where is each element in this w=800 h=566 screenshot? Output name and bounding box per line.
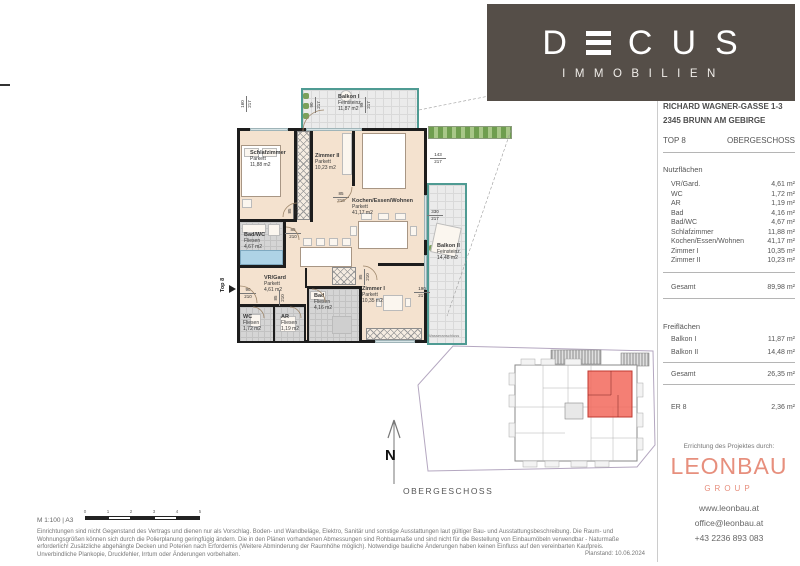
highlighted-unit-walls bbox=[588, 371, 618, 417]
room-label-wc: WCFliesen1,72 m2 bbox=[243, 314, 261, 332]
window bbox=[250, 128, 288, 131]
unit-partition-lines bbox=[515, 365, 637, 461]
stylized-e-letter bbox=[586, 30, 611, 55]
site-overview-map bbox=[413, 343, 673, 508]
area-row: Zimmer I10,35 m² bbox=[663, 248, 795, 255]
wall bbox=[305, 268, 307, 288]
balcony-stubs bbox=[509, 359, 643, 467]
divider bbox=[663, 298, 795, 299]
window bbox=[375, 340, 415, 343]
furniture-chair bbox=[329, 238, 338, 246]
highlighted-unit-top8 bbox=[588, 371, 632, 417]
room-label-bad: BadFliesen4,16 m2 bbox=[314, 293, 332, 311]
freiflaechen-title: Freiflächen bbox=[663, 322, 700, 331]
furniture-chair bbox=[350, 226, 357, 236]
wall bbox=[307, 286, 361, 289]
area-row: Balkon II14,48 m² bbox=[663, 349, 795, 356]
measurement: 95217 bbox=[359, 97, 371, 113]
address-line-2: 2345 BRUNN AM GEBIRGE bbox=[663, 116, 765, 125]
wall bbox=[378, 263, 427, 266]
room-label-zimmer-2: Zimmer IIParkett10,23 m2 bbox=[315, 153, 339, 171]
brand-banner: D C U S IMMOBILIEN bbox=[487, 4, 795, 101]
scalebar-tick: 1 bbox=[104, 509, 112, 514]
unit-number: TOP 8 bbox=[663, 136, 686, 145]
scalebar-segment bbox=[108, 516, 131, 520]
brand-letter-d: D bbox=[542, 26, 569, 60]
furniture-chair bbox=[405, 298, 411, 307]
room-label-schlafzimmer: SchlafzimmerParkett11,88 m2 bbox=[250, 150, 286, 168]
divider bbox=[663, 152, 795, 153]
furniture-kitchen-island bbox=[300, 247, 352, 267]
bathtub bbox=[240, 250, 283, 265]
divider bbox=[663, 384, 795, 385]
area-row: AR1,19 m² bbox=[663, 200, 795, 207]
furniture-chair bbox=[410, 226, 417, 236]
scale-text: M 1:100 | A3 bbox=[37, 517, 73, 524]
minimap-floor-label: OBERGESCHOSS bbox=[403, 486, 493, 496]
brand-letter-u: U bbox=[671, 26, 698, 60]
brand-letter-s: S bbox=[715, 26, 740, 60]
water-connection-label: Wasseranschluss bbox=[428, 333, 459, 338]
wall bbox=[352, 131, 355, 186]
divider bbox=[663, 272, 795, 273]
measurement: 90210 bbox=[240, 287, 256, 299]
roof-hatch bbox=[621, 353, 649, 366]
brand-letter-c: C bbox=[628, 26, 655, 60]
furniture-chair bbox=[342, 238, 351, 246]
nutzflaechen-title: Nutzflächen bbox=[663, 165, 703, 174]
wall bbox=[240, 265, 286, 268]
area-row: VR/Gard.4,61 m² bbox=[663, 181, 795, 188]
disclaimer-line: Wohnungsgrößen können sich durch die Pol… bbox=[37, 537, 647, 545]
scalebar-tick: 5 bbox=[196, 509, 204, 514]
brand-subtitle: IMMOBILIEN bbox=[557, 68, 725, 80]
measurement: 85210 bbox=[358, 269, 370, 285]
divider bbox=[663, 362, 795, 363]
room-label-badwc: Bad/WCFliesen4,67 m2 bbox=[244, 232, 265, 250]
measurement: 330217 bbox=[427, 209, 443, 221]
entry-arrow-icon bbox=[229, 285, 236, 293]
sidebar-divider bbox=[657, 100, 658, 562]
wall bbox=[307, 289, 309, 342]
floor-name: OBERGESCHOSS bbox=[727, 136, 795, 145]
hedge-planter bbox=[428, 126, 512, 139]
measurement: 85210 bbox=[285, 227, 301, 239]
area-row: WC1,72 m² bbox=[663, 191, 795, 198]
wall bbox=[304, 307, 306, 343]
furniture-chair bbox=[303, 238, 312, 246]
measurement: 160217 bbox=[240, 96, 252, 112]
furniture-chair bbox=[316, 238, 325, 246]
furniture-table bbox=[383, 295, 403, 311]
scalebar-tick: 4 bbox=[173, 509, 181, 514]
scalebar-segment bbox=[85, 516, 108, 520]
furniture-kitchen-block bbox=[362, 133, 406, 189]
freiflaechen-total-row: Gesamt26,35 m² bbox=[663, 371, 795, 378]
wardrobe-hatch bbox=[366, 328, 422, 340]
furniture-desk bbox=[342, 133, 352, 175]
measurement: 143217 bbox=[430, 152, 446, 164]
stair-core bbox=[565, 403, 583, 419]
brand-logo: D C U S bbox=[542, 26, 739, 60]
scalebar-segment bbox=[154, 516, 177, 520]
disclaimer-line: Einrichtungen sind nicht Gegenstand des … bbox=[37, 529, 647, 537]
measurement: 85210 bbox=[287, 203, 299, 219]
toilet bbox=[268, 224, 280, 236]
trim-mark bbox=[0, 84, 10, 86]
furniture-nightstand bbox=[242, 199, 252, 208]
area-row: Bad/WC4,67 m² bbox=[663, 219, 795, 226]
shower bbox=[332, 316, 352, 334]
area-row: Balkon I11,87 m² bbox=[663, 336, 795, 343]
unit-floor-row: TOP 8 OBERGESCHOSS bbox=[663, 136, 795, 145]
building-outline bbox=[515, 365, 637, 461]
measurement: 90217 bbox=[309, 97, 321, 113]
wall bbox=[240, 219, 297, 222]
area-row: Kochen/Essen/Wohnen41,17 m² bbox=[663, 238, 795, 245]
measurement: 85210 bbox=[333, 191, 349, 203]
er-row: ER 82,36 m² bbox=[663, 404, 795, 411]
window bbox=[306, 128, 362, 131]
furniture-dining-table bbox=[358, 221, 408, 249]
nutzflaechen-total-row: Gesamt89,98 m² bbox=[663, 284, 795, 291]
area-row: Bad4,16 m² bbox=[663, 210, 795, 217]
north-arrow-icon: N bbox=[385, 420, 400, 484]
scalebar-segment bbox=[177, 516, 200, 520]
roof-hatch bbox=[551, 350, 601, 364]
room-label-zimmer-1: Zimmer IParkett10,35 m2 bbox=[362, 286, 385, 304]
measurement: 85210 bbox=[273, 290, 285, 306]
area-row: Zimmer II10,23 m² bbox=[663, 257, 795, 264]
window bbox=[424, 255, 427, 290]
plan-document-page: D C U S IMMOBILIEN RICHARD WAGNER-GASSE … bbox=[0, 0, 800, 566]
wardrobe-hatch bbox=[332, 267, 356, 285]
area-row: Schlafzimmer11,88 m² bbox=[663, 229, 795, 236]
room-label-balkon-2: Balkon IIFeinsteinz.14,48 m2 bbox=[437, 243, 461, 261]
room-label-kochen-essen-wohnen: Kochen/Essen/WohnenParkett41,17 m2 bbox=[352, 198, 413, 216]
north-label: N bbox=[385, 447, 396, 464]
wall bbox=[310, 131, 313, 222]
plan-date: Planstand: 10.06.2024 bbox=[450, 551, 645, 557]
scalebar-tick: 2 bbox=[127, 509, 135, 514]
measurement: 190217 bbox=[414, 286, 430, 298]
scalebar-tick: 3 bbox=[150, 509, 158, 514]
property-boundary bbox=[418, 346, 655, 471]
balcony-2-floor bbox=[427, 183, 467, 345]
address-line-1: RICHARD WAGNER-GASSE 1-3 bbox=[663, 102, 783, 111]
wall bbox=[273, 307, 275, 343]
entry-label: Top 8 bbox=[220, 278, 226, 292]
scalebar-tick: 0 bbox=[81, 509, 89, 514]
scalebar-segment bbox=[131, 516, 154, 520]
plant-icon bbox=[303, 113, 309, 119]
room-label-ar: ARFliesen1,19 m2 bbox=[281, 314, 299, 332]
